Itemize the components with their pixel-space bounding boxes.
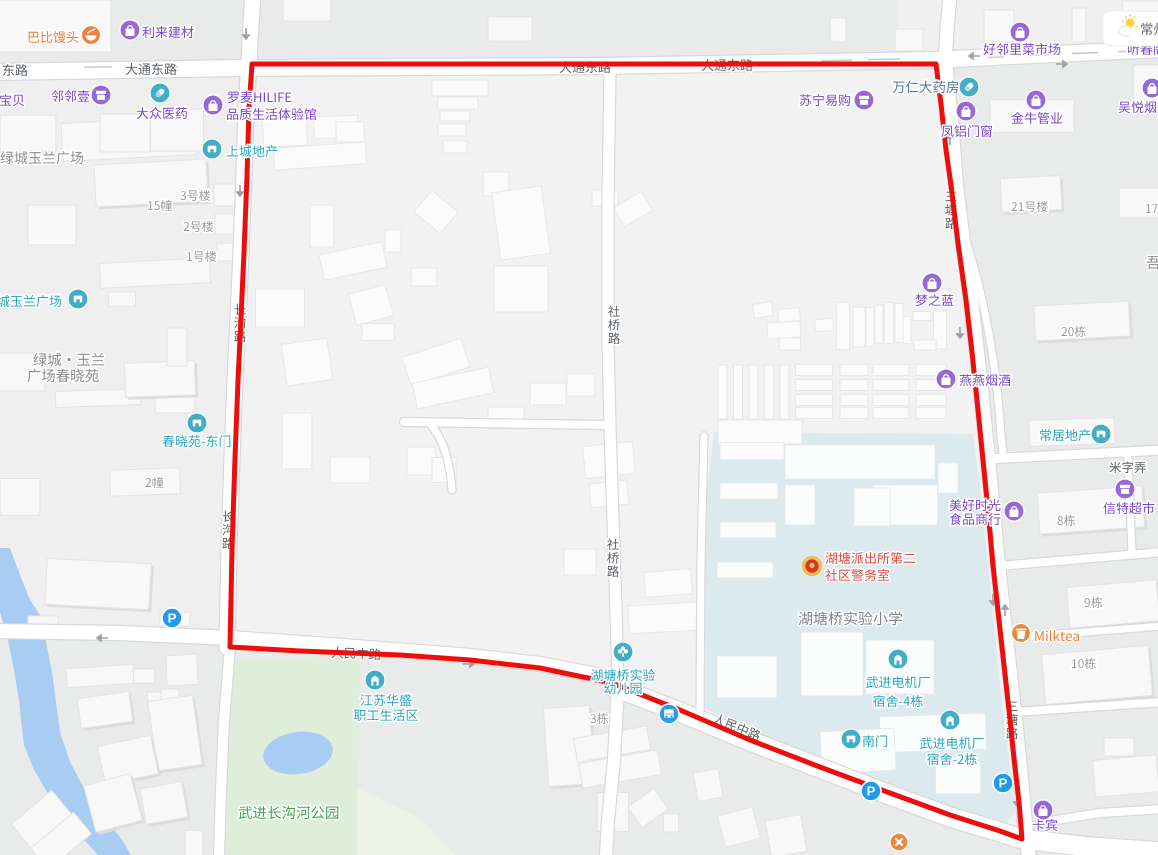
svg-text:P: P [168, 611, 177, 626]
svg-text:P: P [867, 784, 876, 799]
svg-text:P: P [999, 776, 1008, 791]
